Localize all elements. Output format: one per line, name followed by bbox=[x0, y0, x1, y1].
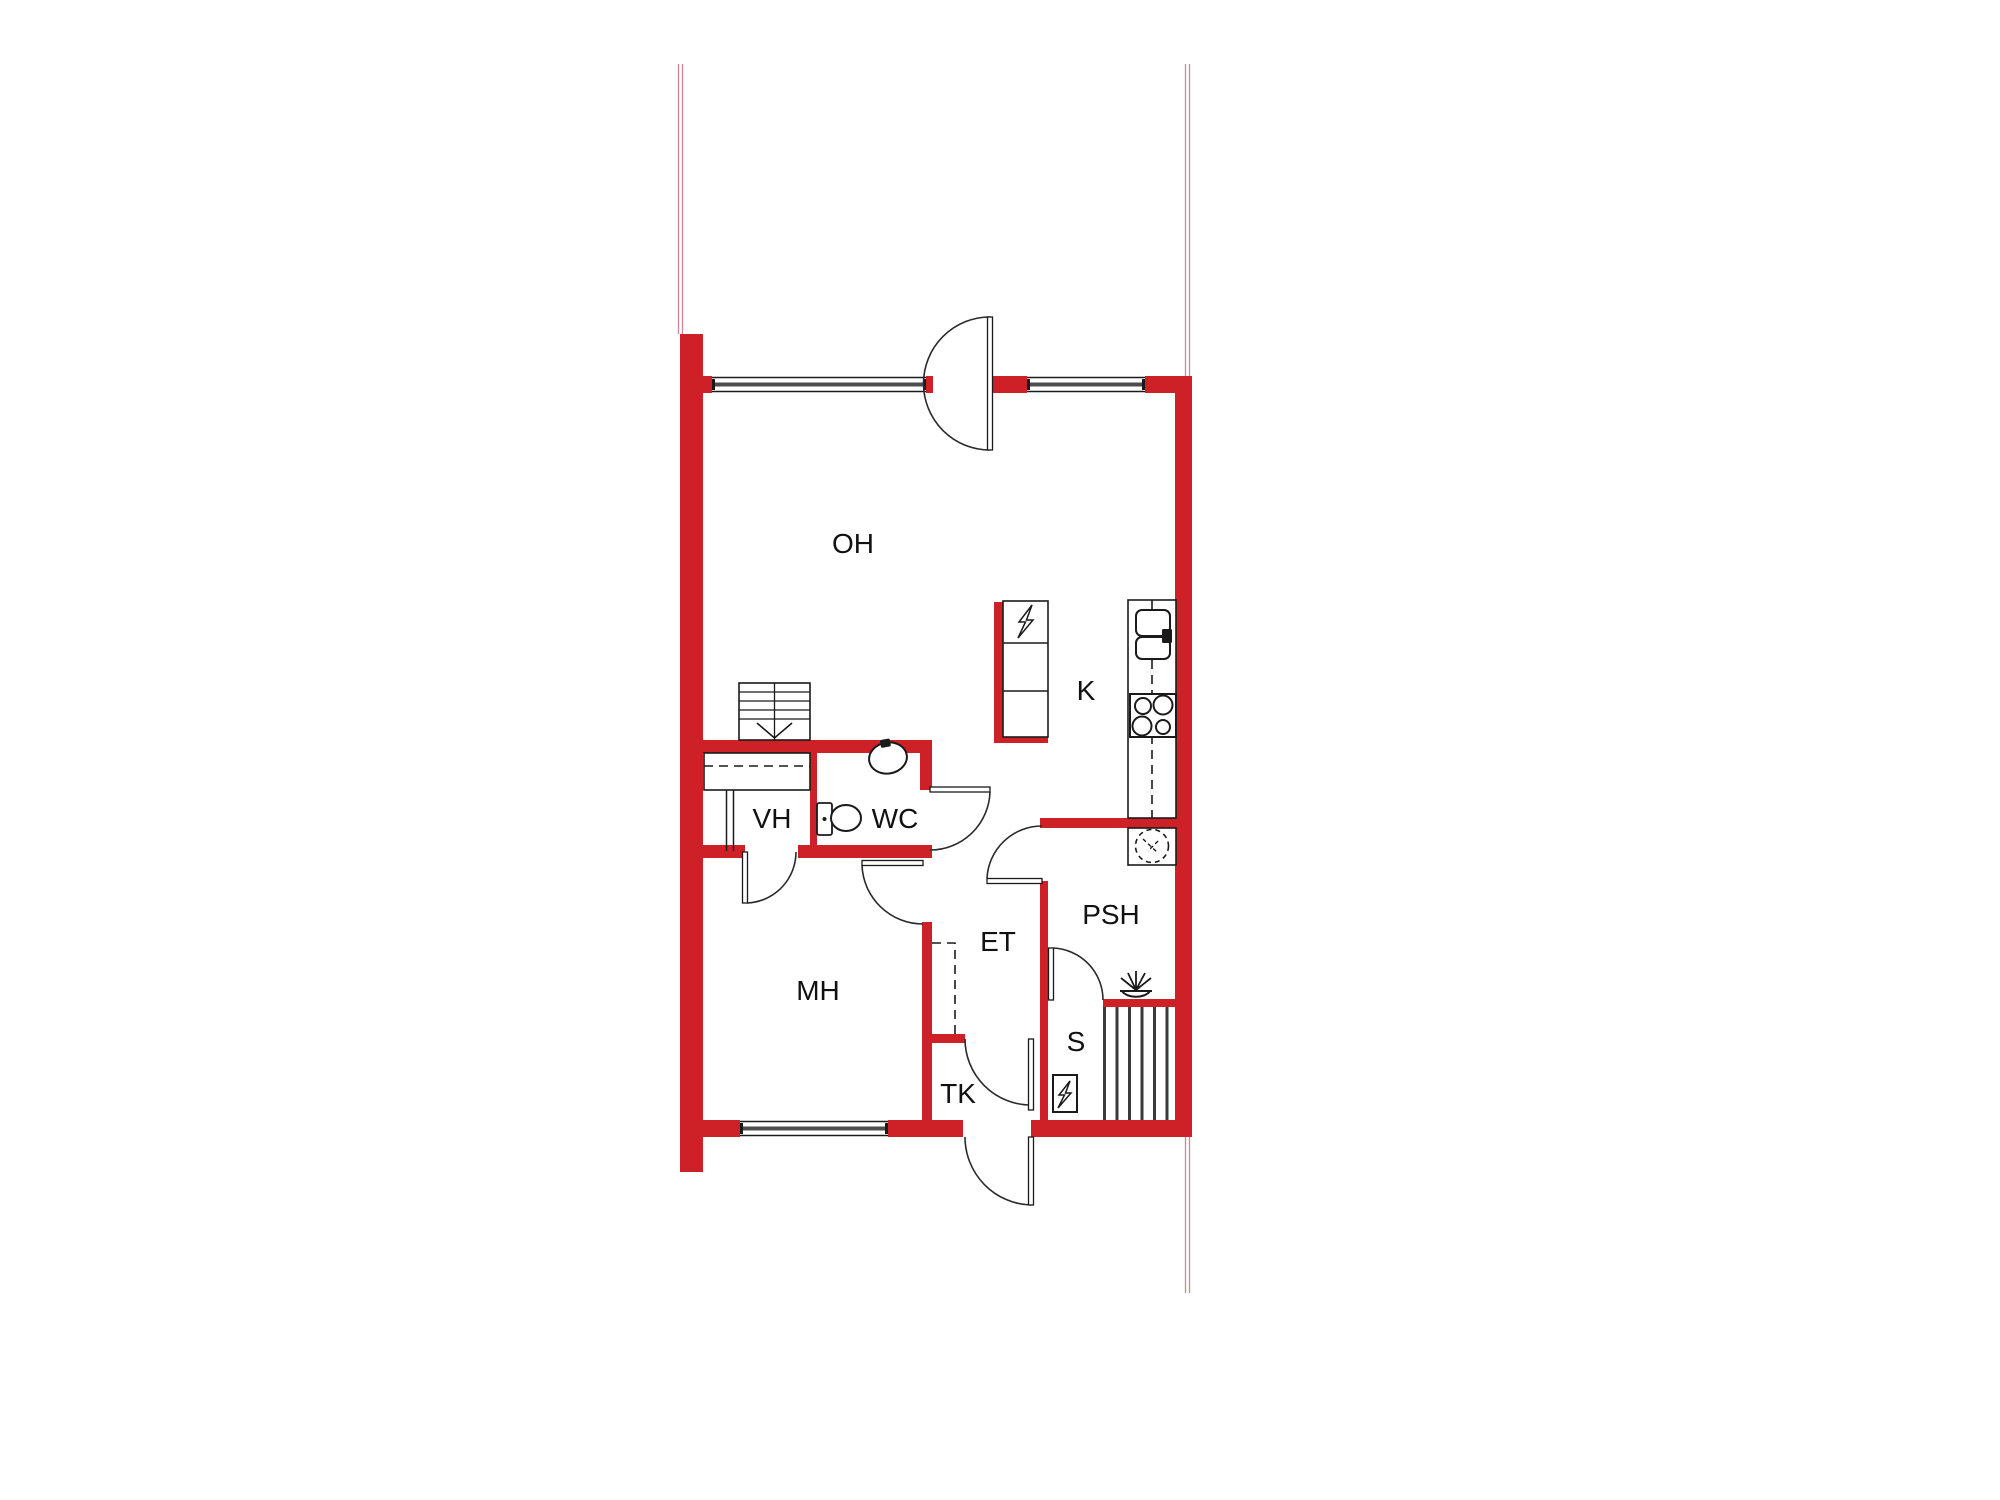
wc-door bbox=[930, 787, 990, 850]
terrace-door bbox=[924, 317, 993, 450]
front-door bbox=[965, 1137, 1034, 1205]
toilet-icon bbox=[817, 803, 861, 835]
room-label-vh: VH bbox=[753, 803, 792, 834]
bottom-wall-left bbox=[703, 1120, 740, 1137]
window-top-left bbox=[712, 378, 926, 392]
bedroom-door bbox=[862, 861, 923, 925]
floor-plan: OH K VH WC MH ET PSH S TK bbox=[0, 0, 2000, 1500]
sauna-heater-icon bbox=[1053, 1075, 1077, 1112]
room-label-oh: OH bbox=[832, 528, 874, 559]
sauna-top-wall bbox=[1103, 999, 1176, 1007]
wardrobe-icon bbox=[704, 753, 810, 851]
tk-top-wall-stub bbox=[932, 1034, 965, 1043]
floor-plan-canvas: OH K VH WC MH ET PSH S TK bbox=[0, 0, 2000, 1500]
room-label-k: K bbox=[1077, 675, 1096, 706]
electric-cabinet-icon bbox=[1003, 601, 1048, 737]
window-bottom bbox=[740, 1122, 888, 1136]
room-label-wc: WC bbox=[872, 803, 919, 834]
sauna-door bbox=[1049, 948, 1104, 1000]
kitchen-sink-icon bbox=[1136, 610, 1172, 659]
boundary-line-right-top bbox=[1186, 64, 1190, 376]
stove-icon bbox=[1130, 694, 1176, 737]
cabinet-bottom-wall bbox=[994, 737, 1048, 743]
boundary-line-right-bottom bbox=[1186, 1137, 1190, 1293]
vh-door bbox=[743, 852, 797, 903]
room-label-tk: TK bbox=[940, 1078, 976, 1109]
cabinet-side-wall bbox=[994, 602, 1003, 743]
psh-door bbox=[987, 826, 1042, 884]
room-label-et: ET bbox=[980, 926, 1016, 957]
vh-wc-divider-wall bbox=[810, 753, 817, 845]
right-exterior-wall bbox=[1175, 376, 1192, 1137]
left-exterior-wall bbox=[680, 334, 703, 1172]
mh-tk-wall bbox=[922, 922, 932, 1120]
wc-right-wall bbox=[920, 740, 932, 790]
room-label-psh: PSH bbox=[1082, 899, 1140, 930]
room-label-mh: MH bbox=[796, 975, 840, 1006]
top-wall-pier-1 bbox=[926, 376, 933, 393]
shower-icon bbox=[1120, 971, 1152, 997]
wc-bottom-wall bbox=[798, 845, 932, 858]
room-label-s: S bbox=[1067, 1026, 1086, 1057]
vh-bottom-wall bbox=[703, 845, 745, 858]
washing-machine-icon bbox=[1128, 828, 1176, 865]
sauna-bench-icon bbox=[1105, 1007, 1168, 1120]
window-top-right bbox=[1027, 378, 1145, 392]
bottom-wall-right bbox=[1031, 1120, 1192, 1137]
kitchen-psh-wall bbox=[1040, 818, 1176, 828]
top-wall-pier-2 bbox=[991, 376, 1027, 393]
bottom-wall-mid bbox=[888, 1120, 963, 1137]
stair-headroom-dashed-line bbox=[932, 943, 955, 1034]
boundary-line-left bbox=[679, 64, 683, 334]
psh-left-wall bbox=[1040, 881, 1048, 1120]
stairs-icon bbox=[739, 683, 810, 740]
top-wall-stub bbox=[703, 376, 712, 393]
